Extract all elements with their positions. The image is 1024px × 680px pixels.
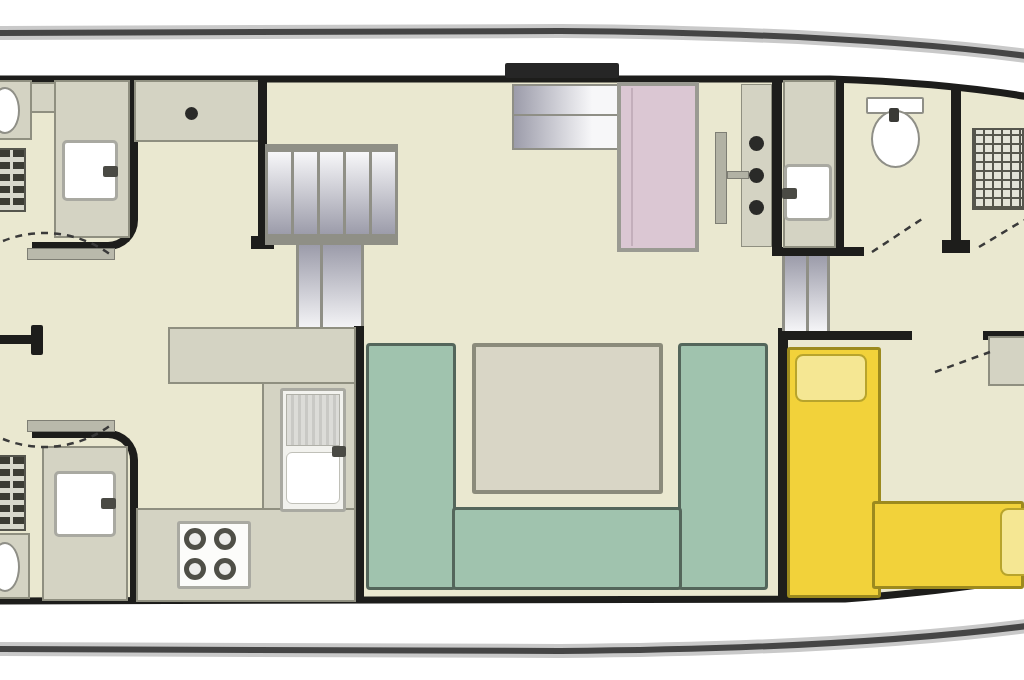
- boat-floorplan: [0, 0, 1024, 680]
- door-swing-bow-bottom: [935, 352, 990, 372]
- door-arc-cabin-bottom: [3, 425, 111, 447]
- door-swing-bow-top: [979, 220, 1024, 247]
- door-swing-layer: [0, 0, 1024, 680]
- door-swing-wc: [872, 219, 922, 252]
- door-arc-cabin-top: [3, 233, 111, 255]
